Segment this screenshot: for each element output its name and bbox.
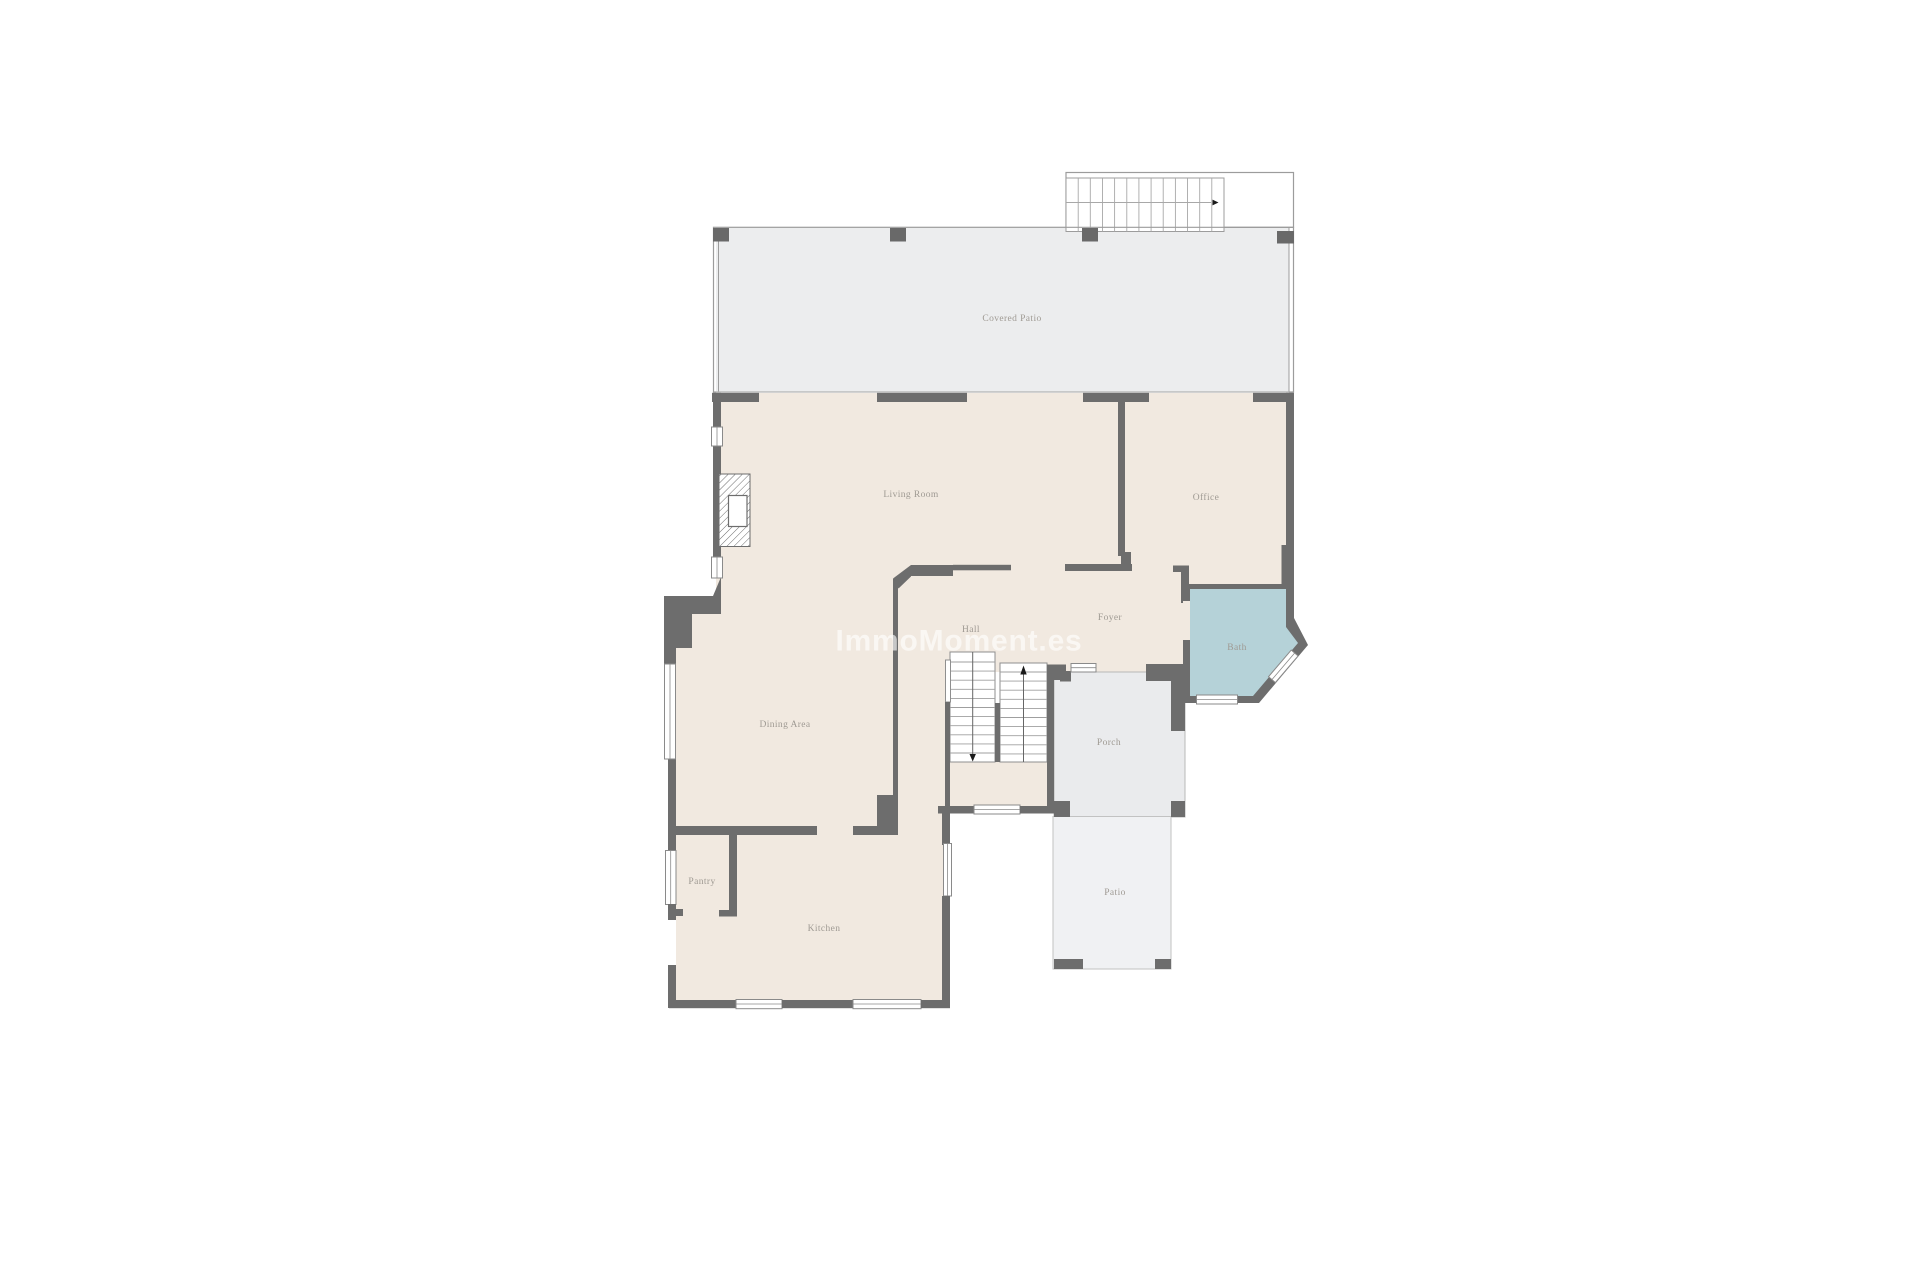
svg-text:Office: Office [1193,492,1220,503]
svg-text:Living Room: Living Room [883,490,939,500]
svg-text:Foyer: Foyer [1098,613,1123,623]
svg-text:Dining Area: Dining Area [759,720,810,730]
svg-text:Porch: Porch [1097,738,1121,748]
svg-text:Covered Patio: Covered Patio [982,314,1041,324]
svg-text:Kitchen: Kitchen [808,924,841,934]
svg-text:Bath: Bath [1227,643,1247,653]
svg-text:Pantry: Pantry [688,877,715,887]
svg-text:ImmoMoment.es: ImmoMoment.es [835,625,1082,658]
svg-text:Patio: Patio [1104,888,1126,898]
